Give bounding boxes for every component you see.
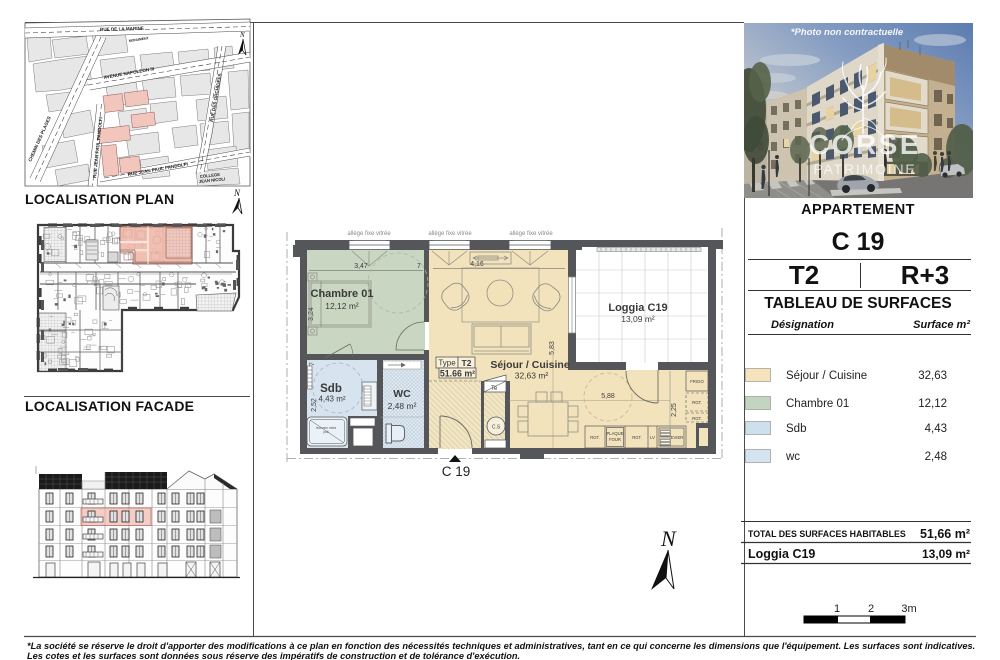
svg-text:T2: T2 [462, 358, 472, 368]
svg-text:3,47: 3,47 [354, 263, 368, 270]
svg-text:CORSE: CORSE [809, 129, 921, 160]
svg-text:Type: Type [438, 359, 456, 368]
svg-text:Chambre 01: Chambre 01 [311, 288, 374, 300]
svg-text:EVIER: EVIER [671, 435, 684, 440]
svg-text:allège fixe vitrée: allège fixe vitrée [347, 231, 391, 237]
svg-text:Loggia C19: Loggia C19 [748, 547, 815, 561]
svg-text:wc: wc [785, 451, 800, 463]
svg-text:R+3: R+3 [901, 260, 949, 290]
svg-text:WC: WC [393, 388, 411, 400]
svg-text:C.S: C.S [492, 425, 501, 431]
svg-text:Les cotes et les surfaces sont: Les cotes et les surfaces sont données s… [27, 651, 520, 660]
svg-text:PATRIMOINE: PATRIMOINE [813, 161, 916, 177]
svg-text:Chambre 01: Chambre 01 [786, 398, 849, 410]
svg-text:allège fixe vitrée: allège fixe vitrée [509, 231, 553, 237]
svg-text:13,09 m²: 13,09 m² [922, 547, 970, 561]
svg-text:N: N [233, 188, 241, 198]
svg-text:TABLEAU DE SURFACES: TABLEAU DE SURFACES [764, 295, 951, 312]
svg-text:2,25: 2,25 [671, 403, 678, 417]
svg-text:TOTAL DES SURFACES HABITABLES: TOTAL DES SURFACES HABITABLES [748, 529, 906, 539]
svg-text:51.66 m²: 51.66 m² [440, 369, 475, 379]
svg-text:RGT.: RGT. [692, 416, 702, 421]
svg-text:LOCALISATION FACADE: LOCALISATION FACADE [25, 398, 194, 414]
svg-text:12,12: 12,12 [918, 398, 947, 410]
svg-text:N: N [239, 31, 245, 39]
svg-text:13,09 m²: 13,09 m² [621, 314, 655, 324]
svg-text:RGT.: RGT. [590, 435, 600, 440]
svg-text:32,63: 32,63 [918, 370, 947, 382]
svg-text:PLAQUE: PLAQUE [607, 431, 624, 436]
svg-text:RGT.: RGT. [692, 400, 702, 405]
svg-text:4,43 m²: 4,43 m² [318, 395, 345, 404]
svg-text:2,48 m²: 2,48 m² [388, 401, 417, 411]
svg-text:1: 1 [834, 603, 840, 615]
svg-text:*Photo non contractuelle: *Photo non contractuelle [791, 27, 904, 38]
svg-text:Te: Te [491, 386, 498, 392]
svg-text:LV: LV [650, 435, 655, 440]
svg-text:LOCALISATION PLAN: LOCALISATION PLAN [25, 191, 174, 207]
svg-text:32,63 m²: 32,63 m² [515, 371, 549, 381]
svg-text:*La société se réserve le droi: *La société se réserve le droit d'apport… [27, 641, 975, 651]
svg-text:Sdb: Sdb [320, 383, 342, 395]
svg-text:Séjour / Cuisine: Séjour / Cuisine [490, 359, 570, 371]
svg-text:Désignation: Désignation [771, 319, 834, 331]
svg-text:7: 7 [309, 362, 316, 366]
svg-text:Surface m²: Surface m² [913, 319, 970, 331]
svg-text:N: N [660, 526, 677, 551]
svg-text:5,83: 5,83 [549, 341, 556, 355]
svg-text:3m: 3m [901, 603, 916, 615]
svg-text:7: 7 [417, 263, 421, 270]
svg-text:5,88: 5,88 [601, 393, 615, 400]
svg-text:C 19: C 19 [832, 228, 885, 256]
svg-text:Séjour / Cuisine: Séjour / Cuisine [786, 370, 867, 382]
svg-text:plat: plat [323, 430, 328, 434]
svg-text:RGT.: RGT. [632, 435, 642, 440]
svg-text:2: 2 [868, 603, 874, 615]
svg-text:APPARTEMENT: APPARTEMENT [801, 202, 915, 218]
svg-text:Sdb: Sdb [786, 423, 806, 435]
svg-text:T2: T2 [789, 260, 819, 290]
svg-text:Loggia C19: Loggia C19 [608, 302, 667, 314]
svg-text:12,12 m²: 12,12 m² [325, 301, 359, 311]
svg-text:2,48: 2,48 [925, 451, 947, 463]
svg-text:4,43: 4,43 [925, 423, 947, 435]
svg-text:allège fixe vitrée: allège fixe vitrée [428, 231, 472, 237]
svg-text:2,52: 2,52 [311, 398, 318, 412]
svg-text:C 19: C 19 [442, 464, 471, 479]
svg-text:FRIGO: FRIGO [690, 379, 704, 384]
svg-text:4,16: 4,16 [470, 261, 484, 268]
svg-text:51,66 m²: 51,66 m² [920, 527, 970, 541]
svg-text:FOUR: FOUR [609, 437, 621, 442]
